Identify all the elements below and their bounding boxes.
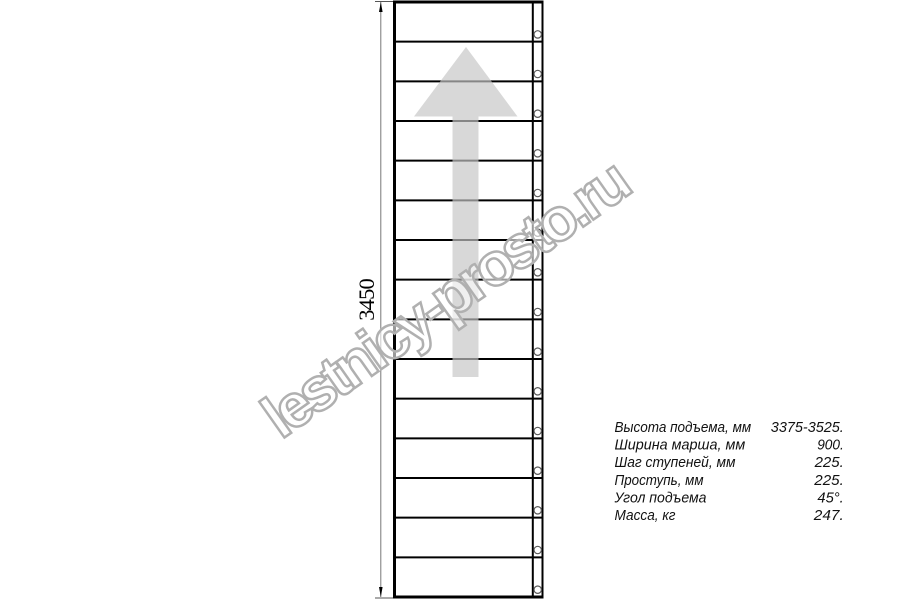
svg-text:Ширина марша, мм: Ширина марша, мм: [615, 438, 746, 454]
svg-text:Масса, кг: Масса, кг: [615, 508, 676, 524]
svg-text:225.: 225.: [814, 455, 844, 471]
svg-text:247.: 247.: [813, 508, 844, 524]
svg-text:Высота подъема, мм: Высота подъема, мм: [615, 420, 752, 436]
svg-text:3375-3525.: 3375-3525.: [771, 420, 844, 436]
svg-text:900.: 900.: [817, 438, 844, 454]
svg-text:Проступь, мм: Проступь, мм: [615, 473, 704, 489]
svg-text:225.: 225.: [813, 473, 844, 489]
svg-text:lestnicy-prosto.ru: lestnicy-prosto.ru: [249, 145, 643, 451]
svg-text:Угол подъема: Угол подъема: [614, 490, 707, 506]
svg-text:Шаг ступеней, мм: Шаг ступеней, мм: [615, 455, 736, 471]
svg-text:45°.: 45°.: [817, 490, 843, 506]
